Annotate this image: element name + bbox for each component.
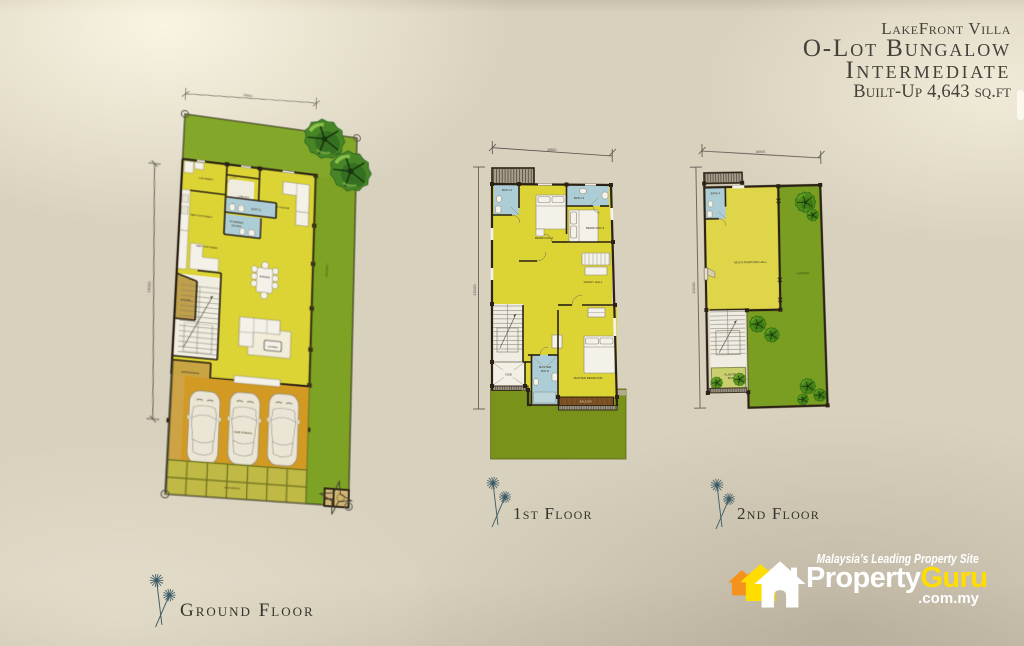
svg-text:BATH 2: BATH 2: [502, 188, 513, 192]
svg-text:BOX: BOX: [728, 376, 734, 380]
svg-text:FAMILY HALL: FAMILY HALL: [584, 280, 603, 284]
svg-text:BALCONY: BALCONY: [580, 400, 593, 404]
svg-text:BEDROOM 3: BEDROOM 3: [586, 226, 604, 230]
svg-text:BATH 4: BATH 4: [711, 191, 721, 195]
svg-text:8900: 8900: [244, 92, 254, 98]
svg-text:MASTER BEDROOM: MASTER BEDROOM: [574, 376, 603, 380]
svg-text:BATH: BATH: [541, 369, 549, 373]
svg-text:VOID: VOID: [505, 373, 513, 377]
svg-text:GARDEN: GARDEN: [796, 271, 809, 275]
svg-text:8900: 8900: [756, 149, 766, 154]
svg-text:MULTI-PURPOSE HALL: MULTI-PURPOSE HALL: [734, 260, 767, 265]
svg-text:BEDROOM 2: BEDROOM 2: [535, 236, 553, 240]
svg-text:15100: 15100: [472, 284, 477, 296]
svg-text:15100: 15100: [146, 281, 152, 293]
svg-text:BATH 3: BATH 3: [574, 196, 585, 200]
svg-text:8900: 8900: [548, 147, 558, 152]
svg-text:10100: 10100: [691, 282, 696, 294]
svg-text:TURFING: TURFING: [324, 263, 328, 278]
